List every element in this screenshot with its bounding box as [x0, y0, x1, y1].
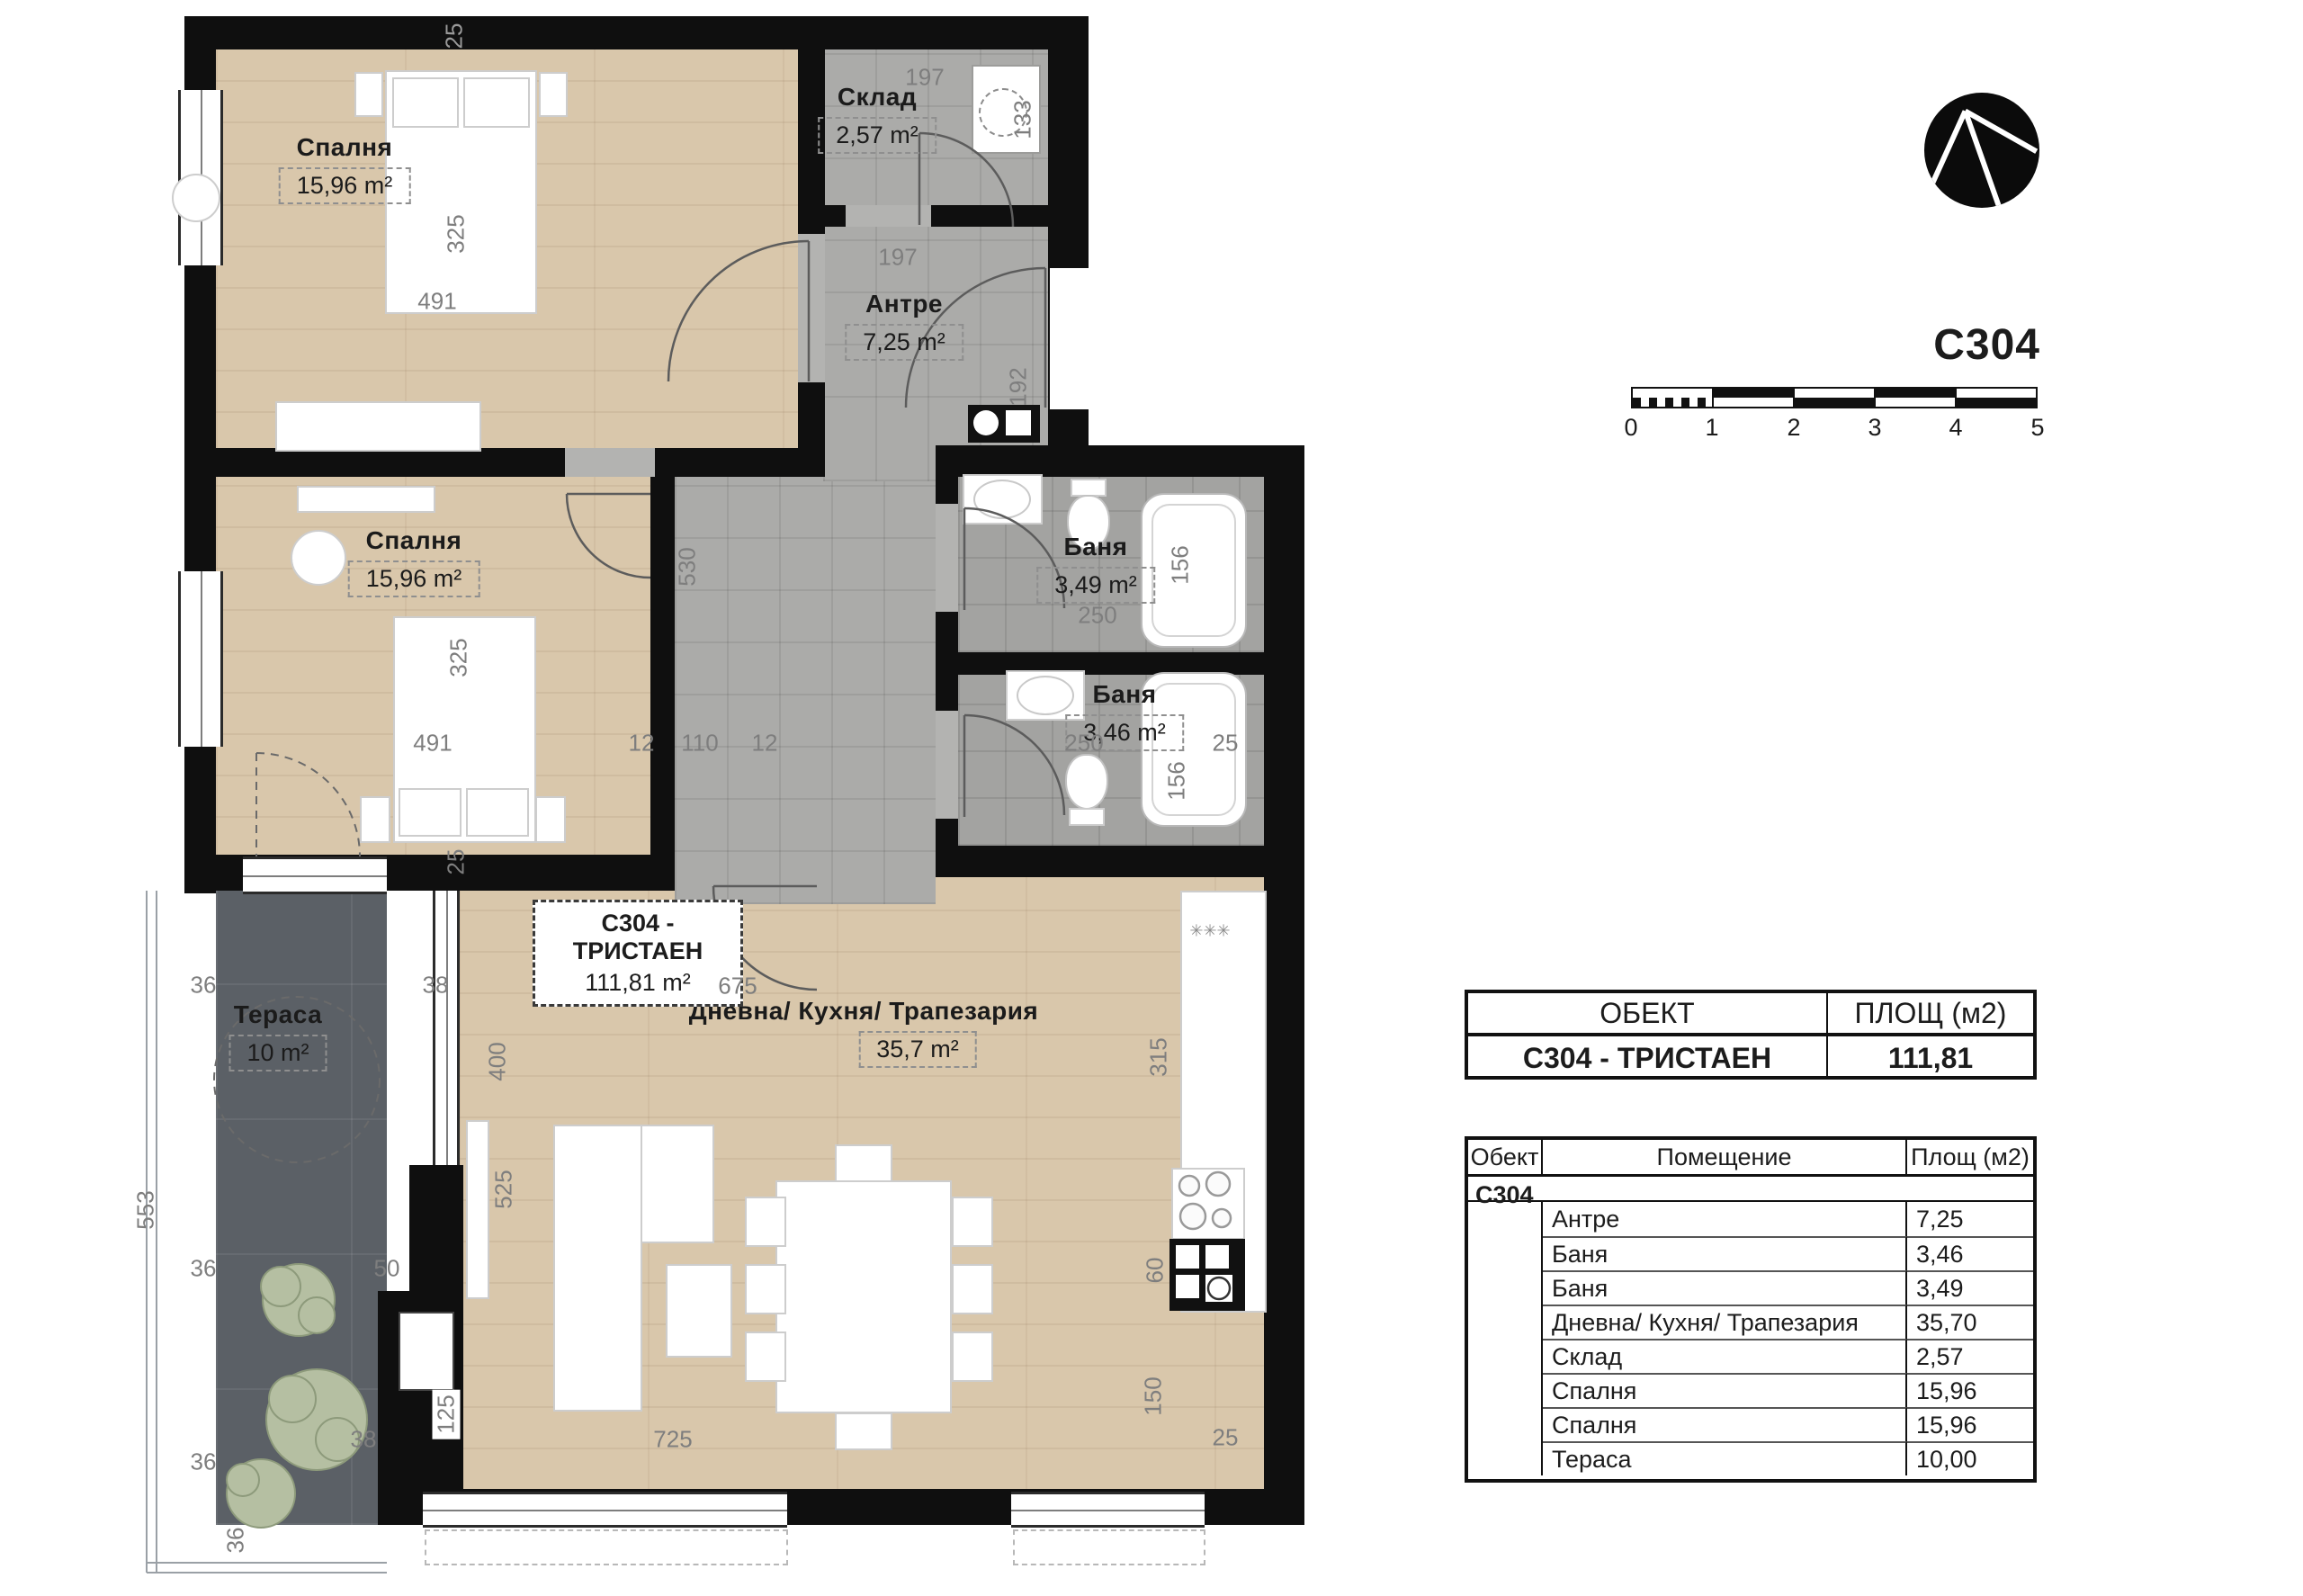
dimension-label: 315 — [1145, 1037, 1173, 1076]
room-name: Спалня — [348, 526, 480, 555]
window-living-terrace — [433, 891, 460, 1165]
hall-cabinet-square — [1006, 410, 1031, 435]
wall-living-right — [1264, 877, 1304, 1525]
stool — [172, 174, 220, 222]
scale-segment — [1874, 389, 1955, 407]
scale-segment — [1793, 389, 1874, 407]
room-name: Антре — [845, 290, 963, 318]
scale-number: 5 — [2030, 414, 2044, 442]
nightstand — [535, 796, 566, 843]
chair — [745, 1331, 786, 1382]
door-gap-bedroom2 — [565, 448, 655, 477]
chair — [835, 1412, 892, 1450]
room-cell: Тераса — [1543, 1441, 1907, 1475]
summary-table-header: ОБЕКТ ПЛОЩ (м2) — [1468, 993, 2033, 1036]
brand-logo — [1922, 91, 2041, 210]
header-cell: ПЛОЩ (м2) — [1828, 993, 2033, 1033]
chair — [745, 1264, 786, 1314]
wall-top — [184, 16, 1089, 49]
cabinet-sink-square — [1205, 1275, 1232, 1302]
room-label-terrace: Тераса 10 m² — [229, 1000, 327, 1071]
scale-number: 4 — [1949, 414, 1962, 442]
table-row: Тераса 10,00 — [1468, 1441, 2033, 1475]
cabinet-square — [1205, 1245, 1229, 1269]
object-cell — [1468, 1441, 1543, 1475]
dimension-label: 192 — [1005, 367, 1033, 406]
scale-segment — [1955, 389, 2036, 407]
dimension-label: 36 — [222, 1528, 250, 1554]
dimension-label: 38 — [423, 972, 449, 1000]
room-label-hall: Антре 7,25 m² — [845, 290, 963, 361]
object-cell — [1468, 1339, 1543, 1373]
hall-cabinet-circle — [973, 410, 999, 435]
room-label-bath1: Баня 3,49 m² — [1036, 533, 1155, 604]
dimension-label: 197 — [878, 244, 917, 272]
dimension-label: 12 — [629, 730, 655, 758]
room-cell: Спалня — [1543, 1373, 1907, 1407]
scale-bar — [1631, 387, 2038, 408]
object-cell — [1468, 1202, 1543, 1236]
wardrobe — [275, 401, 481, 452]
chair — [952, 1331, 993, 1382]
chair — [952, 1197, 993, 1247]
door-gap-bath2 — [936, 711, 958, 819]
dimension-label: 60 — [1142, 1258, 1169, 1284]
window-sill-2 — [1013, 1529, 1205, 1565]
object-cell — [1468, 1236, 1543, 1270]
window-living-1 — [423, 1492, 787, 1528]
unit-area-cell: 111,81 — [1828, 1036, 2033, 1080]
room-area: 2,57 m² — [818, 117, 936, 154]
pillow — [466, 788, 529, 837]
dimension-label: 325 — [443, 214, 470, 253]
dimension-label: 491 — [413, 730, 452, 758]
tv-stand — [466, 1120, 489, 1299]
scale-number: 1 — [1705, 414, 1718, 442]
dimension-label: 25 — [1213, 730, 1239, 758]
room-name: Тераса — [229, 1000, 327, 1029]
table-row: Спалня 15,96 — [1468, 1407, 2033, 1441]
dimension-label: 25 — [1213, 1424, 1239, 1452]
table-row: Антре 7,25 — [1468, 1202, 2033, 1236]
wall-bedroom2-right — [650, 477, 675, 855]
nightstand — [539, 72, 568, 117]
header-cell: Помещение — [1543, 1140, 1907, 1174]
header-cell: Обект — [1468, 1140, 1543, 1174]
dimension-label: 491 — [417, 288, 456, 316]
room-cell: Антре — [1543, 1202, 1907, 1236]
summary-table: ОБЕКТ ПЛОЩ (м2) С304 - ТРИСТАЕН 111,81 — [1465, 990, 2037, 1080]
area-cell: 2,57 — [1907, 1339, 2033, 1373]
dimension-label: 36 — [191, 1255, 217, 1283]
table-row: Баня 3,46 — [1468, 1236, 2033, 1270]
room-cell: Спалня — [1543, 1407, 1907, 1441]
nightstand — [354, 72, 383, 117]
dimension-label: 197 — [905, 64, 944, 92]
window-bedroom2 — [178, 571, 223, 747]
dimension-label: 250 — [1078, 602, 1116, 630]
toilet — [1065, 754, 1108, 810]
wall-living-topright — [936, 846, 1304, 877]
chair — [952, 1264, 993, 1314]
dimension-label: 125 — [433, 1389, 461, 1439]
stool — [291, 530, 346, 586]
freezer-marks: ✳✳✳ — [1189, 922, 1230, 941]
rooms-table: Обект Помещение Площ (м2) С304 Антре 7,2… — [1465, 1136, 2037, 1483]
dimension-label: 400 — [484, 1042, 512, 1080]
dimension-label: 525 — [490, 1170, 518, 1208]
scale-segment — [1712, 389, 1793, 407]
area-cell: 35,70 — [1907, 1305, 2033, 1339]
shaft-niche — [399, 1312, 454, 1391]
area-cell: 3,49 — [1907, 1270, 2033, 1305]
window-sill-1 — [425, 1529, 788, 1565]
room-cell: Дневна/ Кухня/ Трапезария — [1543, 1305, 1907, 1339]
dimension-label: 110 — [681, 730, 718, 758]
sofa — [553, 1125, 642, 1412]
unit-area: 111,81 m² — [548, 969, 728, 997]
area-cell: 3,46 — [1907, 1236, 2033, 1270]
dimension-label: 725 — [653, 1426, 692, 1454]
dimension-label: 553 — [132, 1190, 160, 1229]
dimension-label: 156 — [1163, 761, 1191, 800]
room-label-living: Дневна/ Кухня/ Трапезария 35,7 m² — [689, 997, 1039, 1068]
table-row: Спалня 15,96 — [1468, 1373, 2033, 1407]
room-area: 7,25 m² — [845, 324, 963, 361]
room-cell: Баня — [1543, 1270, 1907, 1305]
dimension-label: 25 — [441, 23, 469, 49]
sofa-chaise — [641, 1125, 714, 1243]
rooms-table-header: Обект Помещение Площ (м2) — [1468, 1140, 2033, 1177]
area-cell: 15,96 — [1907, 1373, 2033, 1407]
dimension-label: 150 — [1140, 1376, 1168, 1415]
cabinet-square — [1176, 1275, 1199, 1298]
area-cell: 15,96 — [1907, 1407, 2033, 1441]
coffee-table — [666, 1264, 732, 1358]
object-cell — [1468, 1373, 1543, 1407]
window-living-2 — [1011, 1492, 1205, 1528]
room-cell: Склад — [1543, 1339, 1907, 1373]
scale-segment — [1633, 389, 1712, 407]
wall-living-left — [409, 1165, 463, 1296]
door-gap-bedroom1 — [798, 234, 825, 382]
area-cell: 10,00 — [1907, 1441, 2033, 1475]
room-name: Спалня — [279, 133, 411, 162]
object-cell — [1468, 1407, 1543, 1441]
toilet-tank — [1069, 808, 1105, 826]
dimension-label: 36 — [191, 972, 217, 1000]
room-cell: Баня — [1543, 1236, 1907, 1270]
door-gap-storage — [846, 205, 931, 227]
unit-name-cell: С304 - ТРИСТАЕН — [1468, 1036, 1828, 1080]
window-terrace-door — [243, 856, 387, 894]
pillow — [463, 77, 530, 128]
dimension-label: 38 — [351, 1426, 377, 1454]
pillow — [392, 77, 459, 128]
dimension-label: 36 — [191, 1448, 217, 1476]
hall-corridor-join — [823, 445, 936, 481]
room-label-storage: Склад 2,57 m² — [818, 83, 936, 154]
scale-number: 0 — [1624, 414, 1637, 442]
wall-bedrooms-divider — [184, 448, 825, 477]
dimension-label: 156 — [1167, 545, 1195, 584]
dimension-label: 325 — [445, 638, 473, 677]
scale-number: 2 — [1787, 414, 1800, 442]
nightstand — [360, 796, 390, 843]
chair — [745, 1197, 786, 1247]
dimension-label: 530 — [674, 547, 702, 586]
room-label-bedroom2: Спалня 15,96 m² — [348, 526, 480, 597]
chair — [835, 1144, 892, 1182]
summary-table-row: С304 - ТРИСТАЕН 111,81 — [1468, 1036, 2033, 1080]
toilet-tank — [1071, 479, 1107, 497]
header-cell: Площ (м2) — [1907, 1140, 2033, 1174]
wall-bath-top — [936, 445, 1304, 477]
object-cell — [1468, 1270, 1543, 1305]
door-gap-bath1 — [936, 504, 958, 612]
room-label-bedroom1: Спалня 15,96 m² — [279, 133, 411, 204]
room-area: 3,49 m² — [1036, 567, 1155, 604]
unit-label-box: C304 - ТРИСТАЕН 111,81 m² — [533, 900, 743, 1007]
scale-number: 3 — [1868, 414, 1881, 442]
sink-basin — [973, 480, 1031, 519]
room-area: 15,96 m² — [348, 560, 480, 597]
floor-plan-sheet: ✳✳✳ — [0, 0, 2303, 1596]
room-area: 10 m² — [229, 1035, 327, 1071]
table-row: Дневна/ Кухня/ Трапезария 35,70 — [1468, 1305, 2033, 1339]
wall-bath-right — [1264, 445, 1304, 877]
unit-code-title: C304 — [1770, 320, 2040, 370]
dimension-label: 12 — [752, 730, 778, 758]
cooktop-panel — [1171, 1168, 1245, 1240]
unit-title: C304 - ТРИСТАЕН — [548, 910, 728, 965]
corridor-floor — [675, 450, 936, 904]
group-row: С304 — [1468, 1177, 2033, 1202]
dimension-label: 133 — [1009, 100, 1037, 139]
table-row: Склад 2,57 — [1468, 1339, 2033, 1373]
area-cell: 7,25 — [1907, 1202, 2033, 1236]
dimension-label: 250 — [1064, 730, 1103, 758]
pillow — [399, 788, 461, 837]
room-name: Баня — [1065, 680, 1184, 709]
object-cell — [1468, 1305, 1543, 1339]
dresser — [297, 486, 435, 513]
cabinet-square — [1176, 1245, 1199, 1269]
header-cell: ОБЕКТ — [1468, 993, 1828, 1033]
dining-table — [775, 1180, 952, 1413]
room-name: Баня — [1036, 533, 1155, 561]
table-row: Баня 3,49 — [1468, 1270, 2033, 1305]
room-area: 35,7 m² — [858, 1031, 977, 1068]
entry-door-gap — [1050, 268, 1089, 409]
dimension-label: 50 — [374, 1255, 400, 1283]
dimension-label: 25 — [443, 849, 470, 875]
room-area: 15,96 m² — [279, 167, 411, 204]
dimension-label: 675 — [718, 973, 757, 1000]
